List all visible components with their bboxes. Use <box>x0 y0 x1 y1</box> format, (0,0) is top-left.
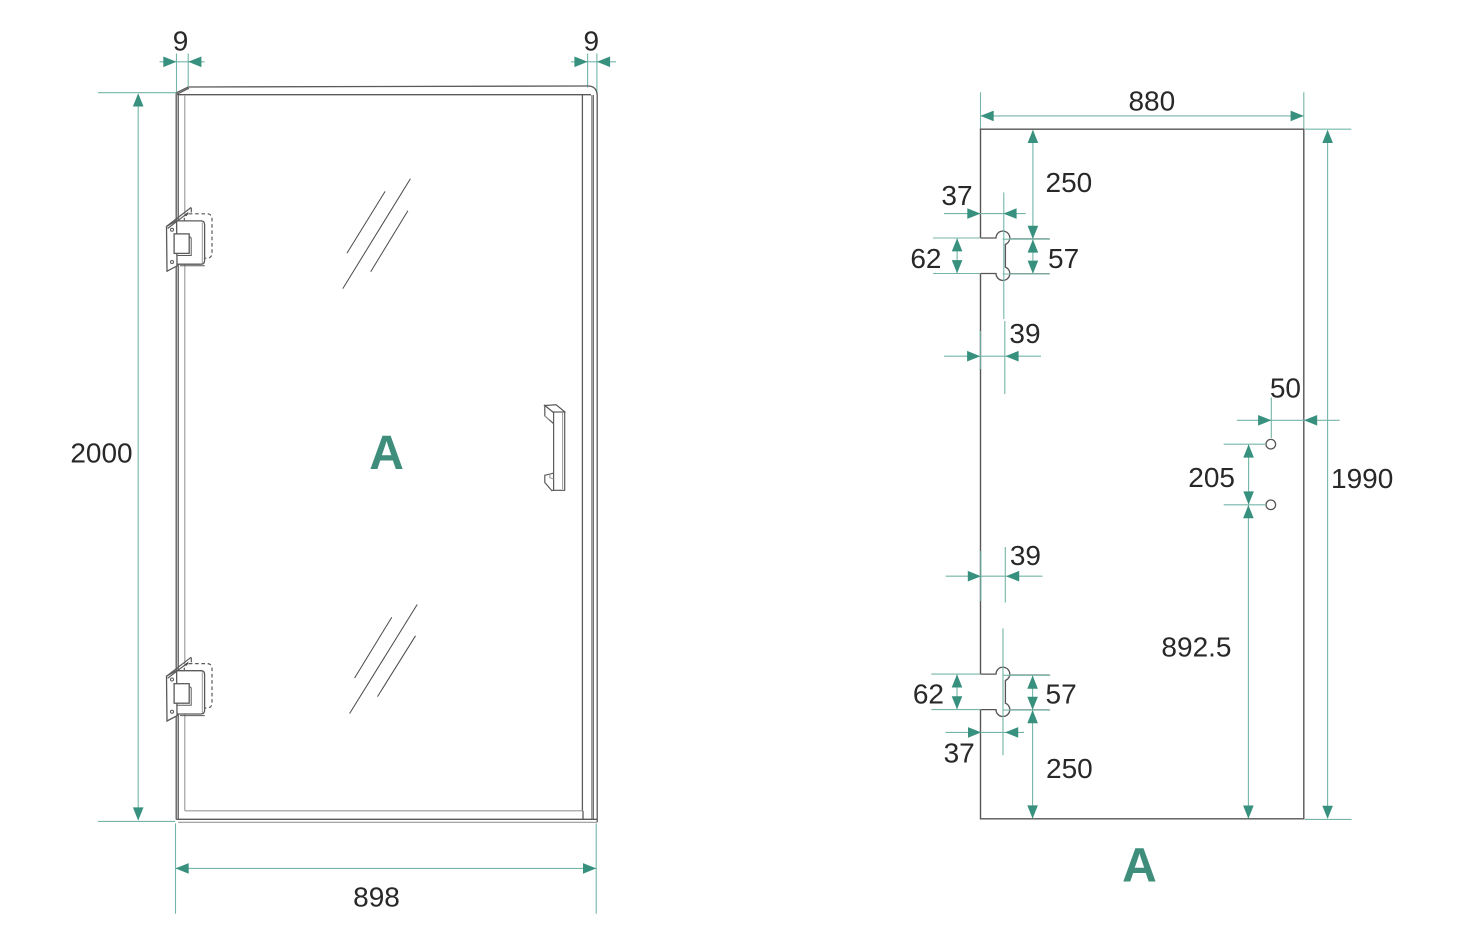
svg-text:1990: 1990 <box>1331 463 1393 494</box>
svg-text:250: 250 <box>1046 167 1093 198</box>
svg-text:A: A <box>369 427 404 480</box>
svg-text:39: 39 <box>1010 540 1041 571</box>
svg-text:250: 250 <box>1046 753 1093 784</box>
svg-text:892.5: 892.5 <box>1161 632 1231 663</box>
svg-text:37: 37 <box>944 738 975 769</box>
svg-text:898: 898 <box>353 881 400 912</box>
svg-text:39: 39 <box>1009 318 1040 349</box>
svg-text:880: 880 <box>1128 86 1175 117</box>
svg-text:62: 62 <box>913 679 944 710</box>
svg-text:9: 9 <box>584 25 600 56</box>
svg-text:50: 50 <box>1270 373 1301 404</box>
svg-text:62: 62 <box>910 243 941 274</box>
svg-text:37: 37 <box>941 180 972 211</box>
svg-text:57: 57 <box>1046 679 1077 710</box>
svg-text:9: 9 <box>173 25 189 56</box>
svg-text:205: 205 <box>1188 462 1235 493</box>
svg-text:2000: 2000 <box>70 438 132 469</box>
svg-text:57: 57 <box>1048 243 1079 274</box>
svg-text:A: A <box>1122 840 1157 893</box>
